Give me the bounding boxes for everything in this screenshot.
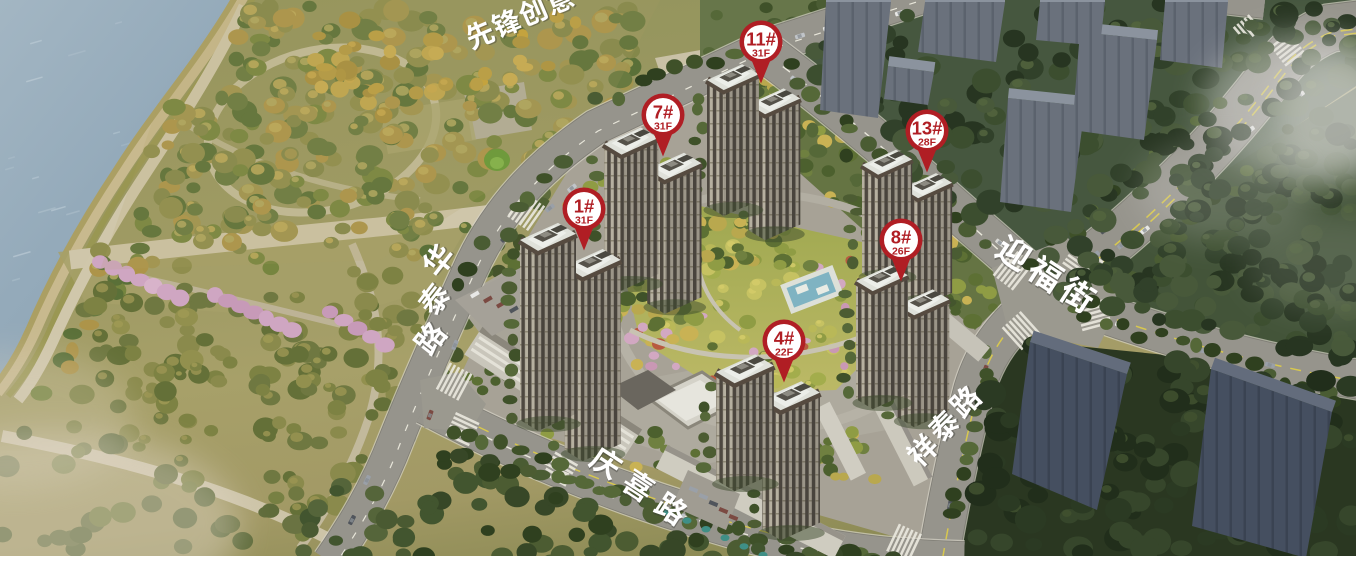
svg-text:7#: 7# <box>653 102 674 123</box>
svg-text:22F: 22F <box>775 347 794 359</box>
svg-text:31F: 31F <box>752 48 771 60</box>
svg-text:28F: 28F <box>918 137 937 149</box>
svg-text:8#: 8# <box>891 227 912 248</box>
svg-text:26F: 26F <box>892 246 911 258</box>
svg-text:13#: 13# <box>912 118 943 139</box>
svg-text:31F: 31F <box>575 215 594 227</box>
svg-text:1#: 1# <box>574 196 595 217</box>
svg-text:11#: 11# <box>746 29 776 50</box>
svg-text:31F: 31F <box>654 121 673 133</box>
svg-text:4#: 4# <box>774 328 795 349</box>
